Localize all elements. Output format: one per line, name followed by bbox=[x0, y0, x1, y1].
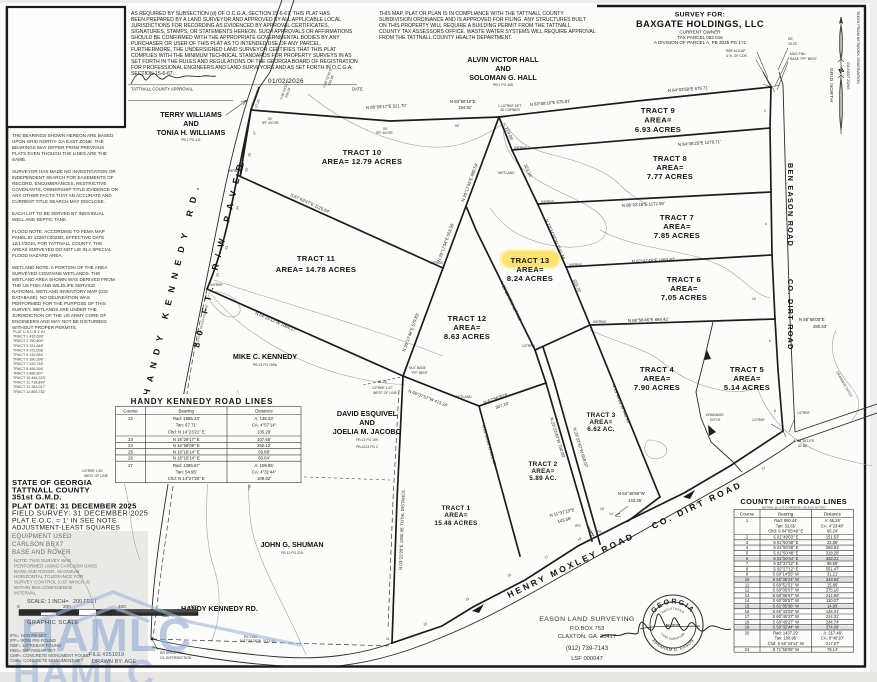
svg-text:S 71°56'05" W: S 71°56'05" W bbox=[773, 647, 800, 652]
svg-text:CO. DIRT ROAD: CO. DIRT ROAD bbox=[786, 279, 795, 351]
svg-text:15.48 ACRES: 15.48 ACRES bbox=[434, 520, 478, 527]
svg-text:N 16°18'14" E: N 16°18'14" E bbox=[173, 449, 200, 454]
svg-text:16: 16 bbox=[745, 609, 750, 614]
svg-text:N 88°58'00"E: N 88°58'00"E bbox=[799, 317, 825, 322]
svg-text:TRACT 10 484,333': TRACT 10 484,333' bbox=[13, 376, 46, 380]
svg-text:TRACT 4 373,008': TRACT 4 373,008' bbox=[13, 348, 44, 352]
svg-text:NUT BASE: NUT BASE bbox=[409, 366, 427, 370]
svg-text:AREA=: AREA= bbox=[733, 374, 761, 383]
svg-text:EACH LOT TO BE SERVED BY INDIV: EACH LOT TO BE SERVED BY INDIVIDUAL bbox=[12, 211, 105, 216]
svg-text:10: 10 bbox=[752, 297, 756, 301]
svg-text:293.81': 293.81' bbox=[826, 545, 840, 550]
svg-text:PERFORMED USING CARLSON GNSS: PERFORMED USING CARLSON GNSS bbox=[14, 563, 97, 568]
svg-text:243.84': 243.84' bbox=[826, 577, 840, 582]
svg-text:PB 2 PG 411: PB 2 PG 411 bbox=[181, 138, 201, 142]
svg-text:FLOOD NOTE: ACCORDING TO FEMA: FLOOD NOTE: ACCORDING TO FEMA MAP bbox=[12, 229, 105, 234]
svg-text:1/2"RBF 1.60': 1/2"RBF 1.60' bbox=[82, 469, 103, 473]
svg-text:INDEPENDENT SEARCH FOR EASEMEN: INDEPENDENT SEARCH FOR EASEMENTS OF bbox=[12, 175, 114, 180]
svg-text:TRACT 9 485,807': TRACT 9 485,807' bbox=[13, 371, 44, 375]
svg-text:TRACT 1: TRACT 1 bbox=[441, 505, 470, 512]
svg-text:375.10': 375.10' bbox=[826, 588, 840, 593]
svg-text:TRACT 5 232,684': TRACT 5 232,684' bbox=[13, 353, 44, 357]
svg-text:S 02°27'12" E: S 02°27'12" E bbox=[773, 566, 799, 571]
svg-text:31.21': 31.21' bbox=[827, 572, 838, 577]
svg-text:S 60°05'57" W: S 60°05'57" W bbox=[773, 598, 800, 603]
svg-text:14: 14 bbox=[745, 598, 750, 603]
svg-text:THE BEARINGS SHOWN HEREON ARE: THE BEARINGS SHOWN HEREON ARE BASED bbox=[12, 133, 114, 138]
svg-text:AREA= 12.79 ACRES: AREA= 12.79 ACRES bbox=[322, 157, 403, 166]
svg-text:3/4"RBF: 3/4"RBF bbox=[210, 283, 223, 287]
svg-text:TRACT 1 432,638': TRACT 1 432,638' bbox=[13, 335, 44, 339]
svg-text:WETLAND: WETLAND bbox=[498, 171, 515, 175]
svg-text:TRACT 6: TRACT 6 bbox=[667, 275, 701, 284]
svg-text:7.85 ACRES: 7.85 ACRES bbox=[654, 231, 700, 240]
svg-text:AREA=: AREA= bbox=[644, 116, 672, 125]
svg-text:13: 13 bbox=[745, 593, 750, 598]
svg-text:N 16°29'17" E: N 16°29'17" E bbox=[173, 437, 200, 442]
svg-text:AND: AND bbox=[359, 418, 375, 427]
svg-text:6: 6 bbox=[769, 339, 771, 343]
svg-text:WITHIN 95% CONFIDENCE: WITHIN 95% CONFIDENCE bbox=[14, 585, 72, 590]
svg-text:WETLAND AREA SHOWN WAS DERIVED: WETLAND AREA SHOWN WAS DERIVED FROM bbox=[12, 277, 115, 282]
svg-text:22: 22 bbox=[128, 416, 133, 421]
svg-text:S 60°05'57" W: S 60°05'57" W bbox=[773, 593, 800, 598]
svg-text:5/8"RBS @ LOT CORNERS UNLESS N: 5/8"RBS @ LOT CORNERS UNLESS NOTED bbox=[762, 506, 827, 510]
svg-text:61.26': 61.26' bbox=[378, 380, 387, 384]
svg-text:5/8"RBS: 5/8"RBS bbox=[541, 200, 555, 204]
svg-text:SURVEYED CONTAINS WETLANDS. TH: SURVEYED CONTAINS WETLANDS. THE bbox=[12, 271, 100, 276]
svg-text:TERRY WILLIAMS: TERRY WILLIAMS bbox=[160, 110, 222, 119]
svg-text:A: 109.85': A: 109.85' bbox=[254, 463, 273, 468]
svg-text:DRAINAGE: DRAINAGE bbox=[706, 413, 724, 417]
svg-text:S 60°45'27" W: S 60°45'27" W bbox=[773, 619, 800, 624]
svg-text:65.24': 65.24' bbox=[827, 529, 838, 534]
svg-text:MIKE C. KENNEDY: MIKE C. KENNEDY bbox=[233, 352, 298, 361]
svg-text:SOLOMAN G. HALL: SOLOMAN G. HALL bbox=[469, 73, 537, 82]
svg-text:5.14 ACRES: 5.14 ACRES bbox=[724, 383, 770, 392]
svg-text:FROM THE TATTNALL COUNTY HEALT: FROM THE TATTNALL COUNTY HEALTH DEPARTME… bbox=[379, 35, 512, 41]
svg-text:214.90': 214.90' bbox=[826, 593, 840, 598]
svg-text:ANY OTHER FACTS THAT AN ACCURA: ANY OTHER FACTS THAT AN ACCURATE AND bbox=[12, 193, 112, 198]
svg-text:TRACT 4: TRACT 4 bbox=[640, 365, 675, 374]
svg-text:AREA=: AREA= bbox=[516, 265, 544, 274]
svg-text:AND: AND bbox=[495, 64, 511, 73]
svg-text:24: 24 bbox=[128, 443, 133, 448]
svg-text:244.74': 244.74' bbox=[826, 619, 840, 624]
svg-text:Course: Course bbox=[740, 512, 755, 517]
svg-text:17: 17 bbox=[745, 614, 750, 619]
svg-text:PLATS EVEN THOUGH THE LINES AR: PLATS EVEN THOUGH THE LINES ARE THE bbox=[12, 151, 107, 156]
svg-text:01/02/2026: 01/02/2026 bbox=[268, 78, 304, 85]
svg-text:DE: DE bbox=[788, 37, 793, 41]
svg-text:50': 50' bbox=[455, 124, 460, 128]
svg-text:S 61°05'36" W: S 61°05'36" W bbox=[773, 604, 800, 609]
svg-text:ENGINEERS AND MAY NOT BE DISTU: ENGINEERS AND MAY NOT BE DISTURBED bbox=[12, 319, 107, 324]
svg-text:DITCH: DITCH bbox=[710, 418, 721, 422]
svg-text:1/2"RBF: 1/2"RBF bbox=[797, 411, 810, 415]
svg-text:JOELIA M. JACOBO: JOELIA M. JACOBO bbox=[333, 427, 402, 436]
svg-text:12/17/2010, FOR TATTNALL COUNT: 12/17/2010, FOR TATTNALL COUNTY, THE bbox=[12, 241, 102, 246]
svg-text:79.14': 79.14' bbox=[827, 647, 838, 652]
svg-text:23: 23 bbox=[128, 437, 133, 442]
svg-text:Chd: N 14°23'21" E: Chd: N 14°23'21" E bbox=[168, 429, 205, 434]
svg-text:IPS: IPS bbox=[596, 530, 602, 534]
svg-text:6.93 ACRES: 6.93 ACRES bbox=[635, 125, 681, 134]
svg-text:S 60°14'55" W: S 60°14'55" W bbox=[773, 572, 800, 577]
svg-text:Bearing: Bearing bbox=[778, 512, 794, 517]
svg-text:25: 25 bbox=[128, 449, 133, 454]
svg-text:PANEL ID 13267C0025D, EFFECTIV: PANEL ID 13267C0025D, EFFECTIVE DATE bbox=[12, 235, 104, 240]
svg-text:FIELD SURVEY: 31 DECEMBER 2025: FIELD SURVEY: 31 DECEMBER 2025 bbox=[12, 509, 148, 518]
svg-text:TRACT 10: TRACT 10 bbox=[343, 148, 382, 157]
svg-text:TRACT 9: TRACT 9 bbox=[641, 106, 675, 115]
svg-text:N 64°48'56"W: N 64°48'56"W bbox=[618, 491, 646, 496]
svg-text:N 88°26'10"E: N 88°26'10"E bbox=[794, 439, 815, 443]
svg-text:59.88': 59.88' bbox=[258, 449, 270, 454]
svg-text:WETLAND: WETLAND bbox=[455, 395, 472, 399]
svg-text:NOTE: THIS SURVEY WAS: NOTE: THIS SURVEY WAS bbox=[14, 558, 71, 563]
svg-text:AREA= 14.78 ACRES: AREA= 14.78 ACRES bbox=[276, 265, 357, 274]
svg-text:194.91': 194.91' bbox=[458, 105, 472, 110]
svg-text:Tan: 67.71': Tan: 67.71' bbox=[176, 423, 197, 428]
svg-text:(912) 739-7143: (912) 739-7143 bbox=[566, 645, 609, 652]
svg-text:N 16°18'14" E: N 16°18'14" E bbox=[173, 456, 200, 461]
svg-text:BASE AND ROVER. MAXIMUM: BASE AND ROVER. MAXIMUM bbox=[14, 569, 80, 574]
svg-text:12: 12 bbox=[745, 588, 750, 593]
svg-text:CMS= CONCRETE MONUMENT SET: CMS= CONCRETE MONUMENT SET bbox=[10, 658, 84, 663]
svg-text:135.29': 135.29' bbox=[257, 429, 271, 434]
svg-text:S 01°50'48" E: S 01°50'48" E bbox=[773, 540, 799, 545]
svg-text:S 60°05'07" W: S 60°05'07" W bbox=[773, 588, 800, 593]
svg-text:PLAT E.O.C. = 1' IN SEE NOTE: PLAT E.O.C. = 1' IN SEE NOTE bbox=[12, 518, 117, 525]
svg-text:TATTNALL COUNTY APPROVAL: TATTNALL COUNTY APPROVAL bbox=[131, 87, 194, 92]
svg-text:109.82': 109.82' bbox=[257, 476, 271, 481]
svg-text:6.62 AC.: 6.62 AC. bbox=[587, 426, 614, 433]
svg-text:1/2"RBF: 1/2"RBF bbox=[752, 418, 765, 422]
svg-text:8.63 ACRES: 8.63 ACRES bbox=[444, 332, 490, 341]
svg-text:JOHN G. SHUMAN: JOHN G. SHUMAN bbox=[260, 540, 323, 549]
svg-text:PB A123 PG 2: PB A123 PG 2 bbox=[356, 445, 378, 449]
svg-text:CA: 4°31'44": CA: 4°31'44" bbox=[252, 469, 277, 474]
svg-text:TRACT 13: TRACT 13 bbox=[511, 256, 550, 265]
svg-text:5.89 AC.: 5.89 AC. bbox=[529, 475, 556, 482]
svg-text:1/2"RBF 1.67': 1/2"RBF 1.67' bbox=[372, 386, 393, 390]
svg-text:Chd: S 66°43'14" W: Chd: S 66°43'14" W bbox=[768, 641, 804, 646]
svg-text:DAVID ESQUIVEL: DAVID ESQUIVEL bbox=[337, 409, 398, 418]
svg-text:N 83°58'10"E: N 83°58'10"E bbox=[450, 99, 476, 104]
svg-text:FLOOD HAZARD AREA.: FLOOD HAZARD AREA. bbox=[12, 253, 63, 258]
svg-text:BEN EASON ROAD: BEN EASON ROAD bbox=[786, 163, 795, 247]
svg-text:60.04': 60.04' bbox=[258, 456, 270, 461]
svg-text:Chd: S 04°05'49" E: Chd: S 04°05'49" E bbox=[768, 529, 803, 534]
svg-text:86.59': 86.59' bbox=[827, 561, 838, 566]
svg-text:ADJUSTMENT-LEAST SQUARES: ADJUSTMENT-LEAST SQUARES bbox=[12, 525, 121, 532]
svg-text:PLAT U.S.C.S 1' IN: PLAT U.S.C.S 1' IN bbox=[13, 330, 45, 334]
svg-text:4: 4 bbox=[765, 222, 767, 226]
svg-text:P.O.BOX 753: P.O.BOX 753 bbox=[570, 626, 604, 632]
svg-text:TRACT 5: TRACT 5 bbox=[730, 365, 765, 374]
svg-text:S 60°45'27" W: S 60°45'27" W bbox=[773, 614, 800, 619]
svg-text:3' N. OF COR.: 3' N. OF COR. bbox=[726, 54, 748, 58]
svg-text:15: 15 bbox=[600, 507, 604, 511]
svg-text:UPON GRID NORTH- GA EAST ZONE.: UPON GRID NORTH- GA EAST ZONE. THE bbox=[12, 139, 104, 144]
svg-text:22.85': 22.85' bbox=[827, 540, 838, 545]
svg-text:TRACT 12 384,017': TRACT 12 384,017' bbox=[13, 385, 46, 389]
svg-text:S 60°43'03" W: S 60°43'03" W bbox=[773, 609, 800, 614]
svg-text:TRACT 11: TRACT 11 bbox=[297, 254, 336, 263]
svg-text:Rad: 1565.23': Rad: 1565.23' bbox=[173, 416, 200, 421]
svg-text:AREA=: AREA= bbox=[643, 374, 671, 383]
svg-text:MAG FND: MAG FND bbox=[790, 52, 806, 56]
svg-text:351st G.M.D.: 351st G.M.D. bbox=[12, 493, 62, 502]
svg-text:"PP" BENT: "PP" BENT bbox=[411, 371, 428, 375]
svg-text:TRACT 3 331,848': TRACT 3 331,848' bbox=[13, 344, 44, 348]
svg-text:CARLSON BRX7: CARLSON BRX7 bbox=[12, 541, 64, 548]
svg-text:TRACT 11 718,849': TRACT 11 718,849' bbox=[13, 381, 45, 385]
svg-text:5/8"RBS: 5/8"RBS bbox=[514, 146, 528, 150]
svg-text:14.93': 14.93' bbox=[827, 604, 838, 609]
svg-text:SURVEY CONTROL 0.03' WHICH IS: SURVEY CONTROL 0.03' WHICH IS bbox=[14, 580, 90, 585]
svg-text:14: 14 bbox=[609, 512, 613, 516]
svg-text:S 02°27'12" E: S 02°27'12" E bbox=[773, 561, 799, 566]
svg-text:S 60°51'51" W: S 60°51'51" W bbox=[773, 582, 800, 587]
svg-text:TRACT 3: TRACT 3 bbox=[586, 412, 615, 419]
svg-text:LSF 000047: LSF 000047 bbox=[571, 656, 603, 662]
svg-text:Tan: 54.95': Tan: 54.95' bbox=[176, 469, 197, 474]
svg-text:333.31': 333.31' bbox=[826, 556, 840, 561]
svg-text:HORIZONTAL TOLERANCE FOR: HORIZONTAL TOLERANCE FOR bbox=[14, 574, 84, 579]
svg-text:10: 10 bbox=[745, 577, 750, 582]
svg-text:143.26': 143.26' bbox=[628, 498, 642, 503]
svg-text:PB 13 PG 199: PB 13 PG 199 bbox=[356, 438, 378, 442]
svg-text:COVENANTS, OWNERSHIP TITLE EVI: COVENANTS, OWNERSHIP TITLE EVIDENCE OR bbox=[12, 187, 119, 192]
svg-text:BASE "PP" BENT: BASE "PP" BENT bbox=[790, 57, 817, 61]
svg-text:2: 2 bbox=[764, 109, 766, 113]
svg-text:BEARINGS MAY DIFFER FROM PREVI: BEARINGS MAY DIFFER FROM PREVIOUS bbox=[12, 145, 104, 150]
svg-text:RECORD, ENCUMBRANCES, RESTRICT: RECORD, ENCUMBRANCES, RESTRICTIVE bbox=[12, 181, 106, 186]
svg-text:S 01°50'44" E: S 01°50'44" E bbox=[773, 556, 799, 561]
svg-text:S 59°32'44" W: S 59°32'44" W bbox=[773, 625, 800, 630]
svg-text:AREA=: AREA= bbox=[589, 419, 612, 426]
svg-text:HANDY KENNEDY ROAD LINES: HANDY KENNEDY ROAD LINES bbox=[131, 397, 274, 406]
svg-text:A: 135.33': A: 135.33' bbox=[254, 416, 273, 421]
svg-text:WELL AND SEPTIC TANK: WELL AND SEPTIC TANK bbox=[12, 217, 67, 222]
svg-text:GRID NORTH: GRID NORTH bbox=[828, 68, 834, 102]
svg-text:SURVEYOR HAS MADE NO INVESTIGA: SURVEYOR HAS MADE NO INVESTIGATION OR bbox=[12, 169, 116, 174]
svg-text:S 01°49'03" E: S 01°49'03" E bbox=[773, 535, 799, 540]
svg-text:SURVEY FOR:: SURVEY FOR: bbox=[675, 12, 726, 19]
svg-text:FILE #251919: FILE #251919 bbox=[89, 652, 124, 658]
svg-text:15.85': 15.85' bbox=[827, 582, 838, 587]
svg-text:S 01°50'48" E: S 01°50'48" E bbox=[773, 545, 799, 550]
svg-text:4D CORNER: 4D CORNER bbox=[500, 108, 521, 112]
svg-text:5/8"RBS: 5/8"RBS bbox=[569, 263, 583, 267]
svg-text:125.01': 125.01' bbox=[826, 609, 840, 614]
svg-text:EQUIPMENT USED: EQUIPMENT USED bbox=[12, 533, 72, 540]
svg-text:NATIONAL WETLAND INVENTORY MAP: NATIONAL WETLAND INVENTORY MAP (GIS bbox=[12, 289, 108, 294]
svg-text:TRACT 13 865,782': TRACT 13 865,782' bbox=[13, 390, 46, 394]
svg-text:CA: 4°57'14": CA: 4°57'14" bbox=[252, 423, 277, 428]
svg-text:AREA=: AREA= bbox=[670, 284, 698, 293]
svg-text:AND: AND bbox=[183, 119, 199, 128]
svg-text:AREA=: AREA= bbox=[656, 163, 684, 172]
svg-text:26: 26 bbox=[128, 456, 133, 461]
svg-text:Distance: Distance bbox=[824, 512, 842, 517]
svg-text:15: 15 bbox=[745, 604, 750, 609]
svg-text:5/8"RBS: 5/8"RBS bbox=[430, 261, 444, 265]
svg-text:AREA=: AREA= bbox=[453, 323, 481, 332]
svg-text:TRACT 7: TRACT 7 bbox=[660, 213, 694, 222]
svg-text:SAME.: SAME. bbox=[12, 157, 26, 162]
svg-text:CURRENT TITLE SEARCH MAY DISCL: CURRENT TITLE SEARCH MAY DISCLOSE. bbox=[12, 199, 105, 204]
svg-text:AREA=: AREA= bbox=[531, 468, 554, 475]
svg-text:5/8"RBS: 5/8"RBS bbox=[593, 320, 607, 324]
svg-text:1/2"RBS: 1/2"RBS bbox=[522, 344, 536, 348]
svg-text:25.23': 25.23' bbox=[788, 42, 797, 46]
svg-text:7.77 ACRES: 7.77 ACRES bbox=[647, 172, 693, 181]
svg-text:IPF 4/COR: IPF 4/COR bbox=[262, 121, 279, 125]
svg-text:BASE AND ROVER: BASE AND ROVER bbox=[12, 549, 71, 556]
svg-text:TRACT 7 420,748': TRACT 7 420,748' bbox=[13, 362, 44, 366]
svg-text:292.12': 292.12' bbox=[257, 443, 271, 448]
svg-text:N 16°58'08" E: N 16°58'08" E bbox=[173, 443, 200, 448]
svg-text:110.07': 110.07' bbox=[826, 598, 839, 603]
svg-text:SURVEY. WETLANDS ARE UNDER THE: SURVEY. WETLANDS ARE UNDER THE bbox=[12, 307, 97, 312]
svg-text:19: 19 bbox=[745, 625, 750, 630]
svg-text:374.09': 374.09' bbox=[826, 625, 840, 630]
svg-text:0: 0 bbox=[17, 604, 20, 609]
svg-text:GA EAST ZONE: GA EAST ZONE bbox=[846, 62, 850, 90]
svg-text:11: 11 bbox=[745, 582, 750, 587]
svg-text:7.05 ACRES: 7.05 ACRES bbox=[661, 293, 707, 302]
svg-text:TONIA H. WILLIAMS: TONIA H. WILLIAMS bbox=[157, 128, 226, 137]
svg-text:A DIVISION OF PARCEL A, PB 202: A DIVISION OF PARCEL A, PB 2025 PG 171 bbox=[654, 40, 747, 45]
svg-text:CURRENT OWNER: CURRENT OWNER bbox=[679, 30, 721, 35]
svg-text:PB 13 PG 219: PB 13 PG 219 bbox=[281, 551, 303, 555]
svg-text:GRAPHIC SCALE: GRAPHIC SCALE bbox=[27, 620, 79, 626]
svg-text:107.65': 107.65' bbox=[257, 437, 271, 442]
svg-text:TRACT 2: TRACT 2 bbox=[528, 461, 557, 468]
svg-text:DRAWN BY: AGE: DRAWN BY: AGE bbox=[92, 659, 137, 665]
svg-text:Rad: 1389.67': Rad: 1389.67' bbox=[173, 463, 200, 468]
svg-text:TRACT 6 390,398': TRACT 6 390,398' bbox=[13, 358, 44, 362]
svg-text:AREAS SURVEYED DO NOT LIE IN A: AREAS SURVEYED DO NOT LIE IN A SPECIAL bbox=[12, 247, 112, 252]
svg-text:8: 8 bbox=[774, 409, 776, 413]
svg-text:27: 27 bbox=[128, 463, 133, 468]
svg-text:WEST OF LINE: WEST OF LINE bbox=[373, 391, 398, 395]
svg-text:DATE: DATE bbox=[352, 87, 363, 92]
svg-text:TRACT 8: TRACT 8 bbox=[653, 154, 687, 163]
svg-text:IPF 4/COR: IPF 4/COR bbox=[376, 131, 393, 135]
svg-text:PB 13 PG 159A: PB 13 PG 159A bbox=[253, 363, 278, 367]
svg-text:S 60°36'24" W: S 60°36'24" W bbox=[773, 577, 800, 582]
svg-text:20: 20 bbox=[745, 631, 750, 636]
svg-text:318.28': 318.28' bbox=[826, 551, 840, 556]
svg-text:BAXGATE HOLDINGS, LLC: BAXGATE HOLDINGS, LLC bbox=[636, 19, 764, 29]
svg-text:INTERVAL: INTERVAL bbox=[14, 590, 36, 595]
svg-text:8.24 ACRES: 8.24 ACRES bbox=[507, 274, 553, 283]
svg-text:TRACT 8 455,394': TRACT 8 455,394' bbox=[13, 367, 44, 371]
svg-text:Chd: N 14°27'20" E: Chd: N 14°27'20" E bbox=[168, 476, 205, 481]
svg-text:5/8"RBS: 5/8"RBS bbox=[228, 169, 242, 173]
svg-text:WETLAND NOTE: A PORTION OF THE: WETLAND NOTE: A PORTION OF THE AREA bbox=[12, 265, 108, 270]
svg-text:217.27': 217.27' bbox=[826, 641, 840, 646]
svg-text:JURISDICTION OF THE US ARMY CO: JURISDICTION OF THE US ARMY CORE OF bbox=[12, 313, 106, 318]
svg-text:ALVIN VICTOR HALL: ALVIN VICTOR HALL bbox=[467, 55, 539, 64]
svg-text:551.47': 551.47' bbox=[826, 566, 840, 571]
svg-text:280.53': 280.53' bbox=[813, 324, 827, 329]
svg-text:DATABASE). NO DELINEATION WAS: DATABASE). NO DELINEATION WAS bbox=[12, 295, 90, 300]
svg-text:21: 21 bbox=[386, 637, 390, 641]
svg-text:THE US FISH AND WILDLIFE SERVI: THE US FISH AND WILDLIFE SERVICE bbox=[12, 283, 95, 288]
svg-text:PB 2 PG 408: PB 2 PG 408 bbox=[493, 83, 513, 87]
svg-text:Distance: Distance bbox=[255, 408, 273, 413]
svg-text:TRACT 2 250,800': TRACT 2 250,800' bbox=[13, 339, 44, 343]
svg-text:151.53': 151.53' bbox=[826, 535, 840, 540]
svg-text:S 01°50'48" E: S 01°50'48" E bbox=[773, 551, 799, 556]
svg-text:PERFORMED FOR THE PURPOSE OF T: PERFORMED FOR THE PURPOSE OF THIS bbox=[12, 301, 106, 306]
svg-text:AREA=: AREA= bbox=[663, 222, 691, 231]
svg-text:Bearing: Bearing bbox=[178, 408, 194, 413]
svg-text:TRACT 12: TRACT 12 bbox=[448, 314, 487, 323]
svg-text:42.88': 42.88' bbox=[798, 444, 807, 448]
svg-text:7.90 ACRES: 7.90 ACRES bbox=[634, 383, 680, 392]
svg-text:AREA=: AREA= bbox=[444, 512, 467, 519]
svg-text:TAKEN FROM NETWORK OBSERVATION: TAKEN FROM NETWORK OBSERVATION bbox=[856, 11, 860, 84]
svg-text:214.31': 214.31' bbox=[826, 614, 840, 619]
svg-text:EASON LAND SURVEYING: EASON LAND SURVEYING bbox=[539, 616, 635, 623]
svg-text:RBF ALICAP: RBF ALICAP bbox=[726, 49, 746, 53]
svg-text:21: 21 bbox=[745, 647, 750, 652]
svg-text:18: 18 bbox=[745, 619, 750, 624]
svg-text:Course: Course bbox=[123, 408, 138, 413]
svg-text:IPS: IPS bbox=[575, 524, 581, 528]
